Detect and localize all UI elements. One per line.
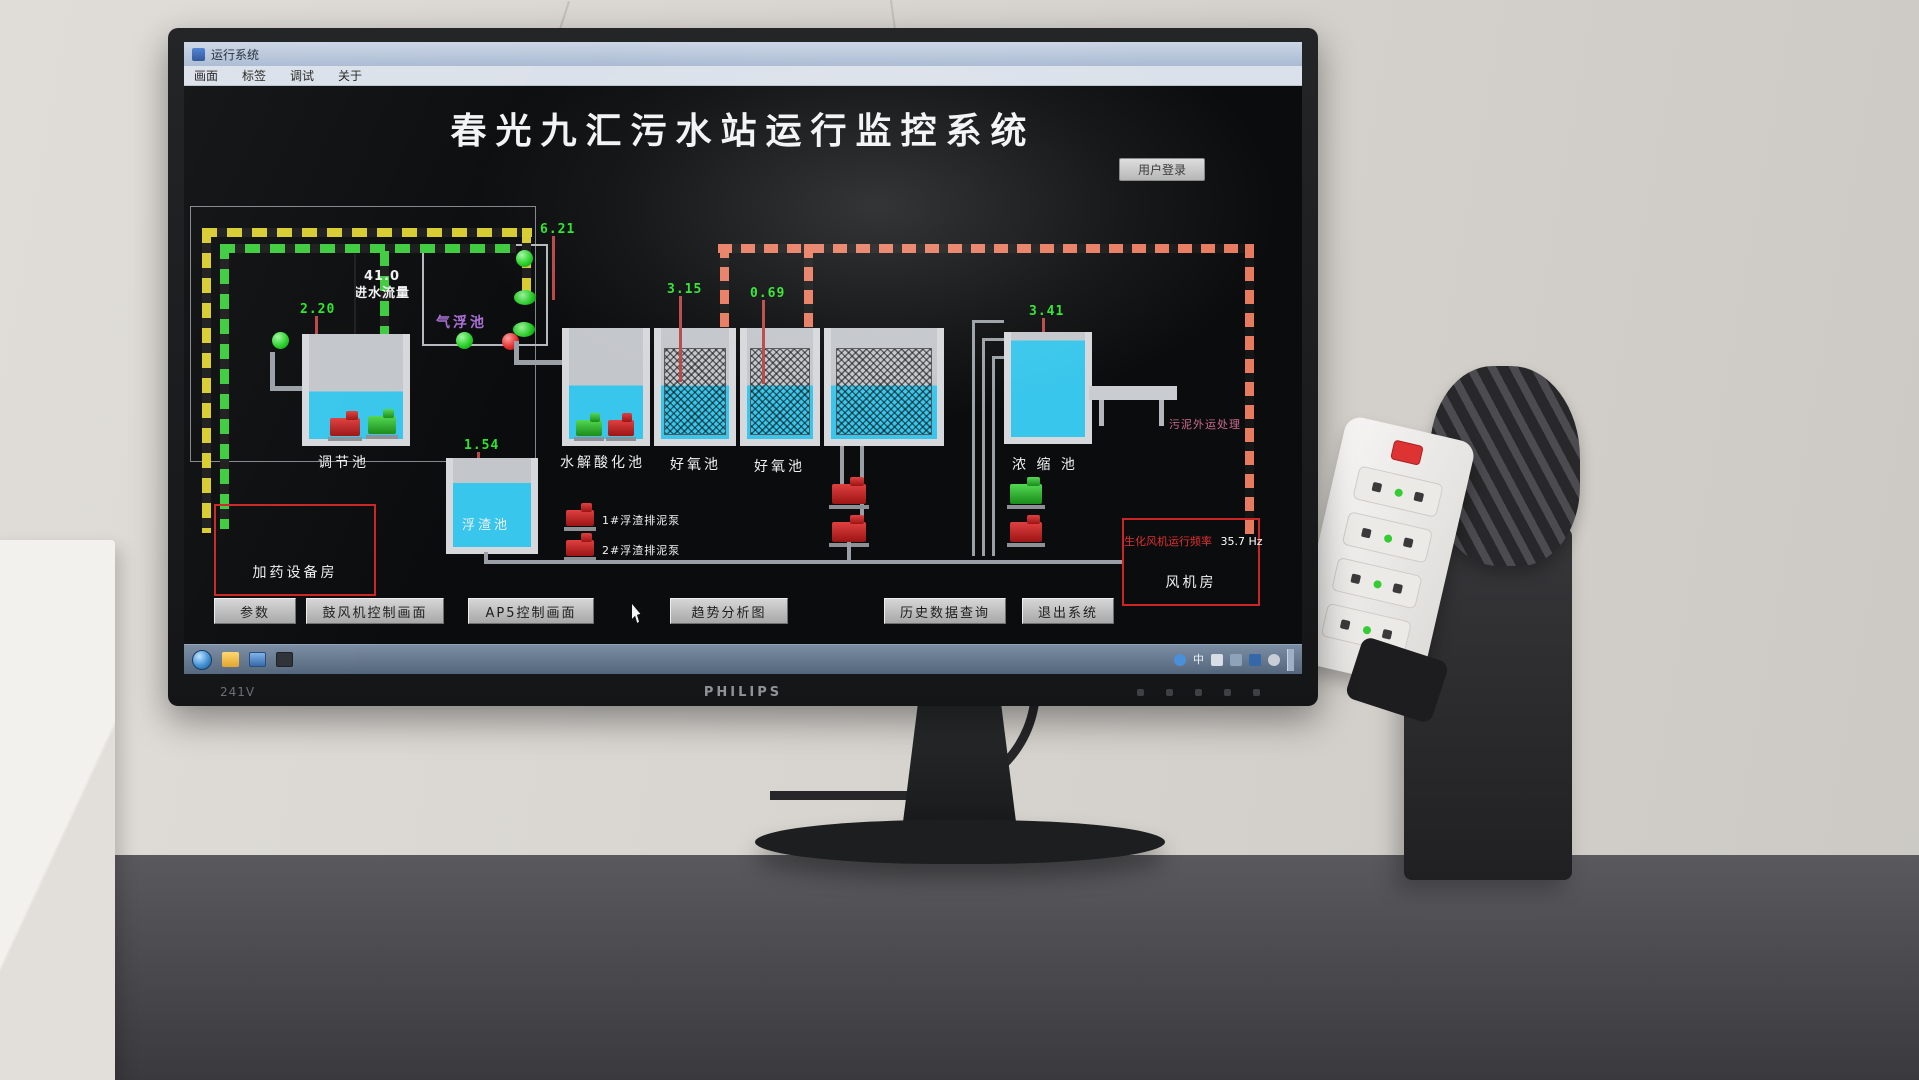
dosing-pipe-green — [220, 244, 229, 529]
blower-frequency-value: 35.7 Hz — [1221, 535, 1263, 548]
folder-icon[interactable] — [222, 652, 239, 667]
tank-label: 调节池 — [318, 452, 369, 472]
level-value: 6.21 — [540, 222, 575, 237]
monitor-button-icon[interactable] — [1224, 689, 1231, 696]
photo-scene: 运行系统 画面 标签 调试 关于 春光九汇污水站运行监控系统 用户登录 — [0, 0, 1919, 1080]
tray-language-icon[interactable]: 中 — [1193, 654, 1204, 665]
menu-item[interactable]: 调试 — [290, 67, 314, 84]
room-label: 风机房 — [1124, 572, 1258, 592]
tank-label: 好氧池 — [670, 454, 721, 474]
inlet-pipe — [270, 352, 275, 390]
power-socket — [1352, 465, 1443, 517]
monitor-stand-base — [755, 820, 1165, 864]
submersible-pump-red[interactable] — [330, 418, 360, 436]
tray-network-icon[interactable] — [1174, 654, 1186, 666]
level-sensor — [552, 236, 555, 300]
fan-room-box: 生化风机运行频率 35.7 Hz 风机房 — [1122, 518, 1260, 606]
aerobic-tank-3 — [824, 328, 944, 446]
sludge-pipe — [484, 560, 1124, 564]
inflow-readout: 41.0 进水流量 — [340, 268, 424, 302]
tray-settings-icon[interactable] — [1268, 654, 1280, 666]
aerobic-tank-1 — [654, 328, 736, 446]
submersible-pump-green[interactable] — [368, 416, 396, 434]
monitor-control-buttons[interactable] — [1137, 689, 1260, 696]
app-window-icon[interactable] — [276, 652, 293, 667]
sludge-out-label: 污泥外运处理 — [1169, 416, 1241, 432]
computer-icon[interactable] — [249, 652, 266, 667]
do-value: 3.15 — [667, 282, 702, 297]
window-menubar: 画面 标签 调试 关于 — [184, 66, 1302, 86]
mouse-cursor — [632, 604, 645, 623]
scum-pump-2[interactable] — [566, 540, 594, 556]
tank-pump-red[interactable] — [608, 420, 634, 436]
power-socket — [1331, 557, 1422, 609]
dosing-pipe-yellow — [202, 228, 532, 237]
conveyor-leg — [1099, 400, 1104, 426]
dosing-pipe-green — [220, 244, 516, 253]
menu-item[interactable]: 标签 — [242, 67, 266, 84]
user-login-button[interactable]: 用户登录 — [1119, 158, 1205, 181]
inflow-value: 41.0 — [340, 268, 424, 285]
level-value: 3.41 — [1029, 304, 1064, 319]
tank-label: 好氧池 — [754, 456, 805, 476]
tank-label: 气浮池 — [436, 312, 487, 332]
tank-pump-green[interactable] — [576, 420, 602, 436]
tray-app-icon[interactable] — [1249, 654, 1261, 666]
power-socket — [1342, 511, 1433, 563]
monitor-stand-neck — [902, 702, 1017, 830]
pipe-outlet-indicator — [514, 290, 536, 305]
monitor-model-label: 241V — [220, 685, 255, 699]
do-sensor — [762, 300, 765, 384]
nav-button-params[interactable]: 参数 — [214, 598, 296, 624]
tank-label: 浮渣池 — [462, 514, 510, 533]
room-label: 加药设备房 — [216, 562, 374, 582]
nav-button-trend-chart[interactable]: 趋势分析图 — [670, 598, 788, 624]
monitor-button-icon[interactable] — [1137, 689, 1144, 696]
sludge-pipe — [840, 446, 844, 486]
status-light-green — [456, 332, 473, 349]
hmi-canvas: 春光九汇污水站运行监控系统 用户登录 — [184, 86, 1302, 644]
aerobic-tank-2 — [740, 328, 820, 446]
wall-crack — [890, 0, 896, 30]
sludge-pipe — [484, 552, 488, 564]
power-strip-switch — [1390, 439, 1424, 465]
inlet-pipe — [270, 386, 306, 391]
tray-input-icon[interactable] — [1211, 654, 1223, 666]
thickener-tank — [1004, 332, 1092, 444]
thickener-pump-red[interactable] — [1010, 522, 1042, 542]
level-value: 2.20 — [300, 302, 335, 317]
scum-pump-1[interactable] — [566, 510, 594, 526]
status-light-green — [516, 250, 533, 267]
nav-button-exit-system[interactable]: 退出系统 — [1022, 598, 1114, 624]
white-carton — [0, 540, 115, 1080]
inflow-label: 进水流量 — [340, 285, 424, 302]
pump-label: 1#浮渣排泥泵 — [602, 512, 680, 528]
level-value: 1.54 — [464, 438, 499, 453]
blower-frequency-label: 生化风机运行频率 — [1124, 535, 1212, 548]
do-value: 0.69 — [750, 286, 785, 301]
do-sensor — [679, 296, 682, 382]
window-titlebar: 运行系统 — [184, 42, 1302, 66]
monitor-brand-logo: PHILIPS — [704, 685, 782, 700]
menu-item[interactable]: 画面 — [194, 67, 218, 84]
window-title: 运行系统 — [211, 46, 259, 63]
conveyor-leg — [1159, 400, 1164, 426]
return-pipe — [992, 356, 1004, 556]
desk-surface — [0, 855, 1919, 1080]
monitor-button-icon[interactable] — [1195, 689, 1202, 696]
air-pipe-red — [1245, 244, 1254, 534]
start-button-icon[interactable] — [192, 650, 212, 670]
app-icon — [192, 48, 205, 61]
monitor: 运行系统 画面 标签 调试 关于 春光九汇污水站运行监控系统 用户登录 — [168, 28, 1318, 706]
sludge-conveyor — [1089, 386, 1177, 400]
page-title: 春光九汇污水站运行监控系统 — [450, 102, 1035, 154]
sludge-pipe — [847, 542, 851, 562]
dosing-pipe-yellow — [202, 228, 211, 533]
dosing-room-box: 加药设备房 — [214, 504, 376, 596]
blower-frequency-readout: 生化风机运行频率 35.7 Hz — [1124, 533, 1258, 549]
status-light-green — [272, 332, 289, 349]
tray-volume-icon[interactable] — [1230, 654, 1242, 666]
monitor-button-icon[interactable] — [1166, 689, 1173, 696]
pump-label: 2#浮渣排泥泵 — [602, 542, 680, 558]
tank-label: 水解酸化池 — [560, 452, 645, 472]
system-tray: 中 — [1174, 649, 1294, 671]
air-pipe-red — [718, 244, 1254, 253]
menu-item[interactable]: 关于 — [338, 67, 362, 84]
taskbar: 中 — [184, 644, 1302, 674]
tank-label: 浓 缩 池 — [1012, 454, 1078, 474]
thickener-pump-green[interactable] — [1010, 484, 1042, 504]
nav-button-ap5-screen[interactable]: AP5控制画面 — [468, 598, 594, 624]
scum-tank — [446, 458, 538, 554]
monitor-power-icon[interactable] — [1253, 689, 1260, 696]
nav-button-history-query[interactable]: 历史数据查询 — [884, 598, 1006, 624]
show-desktop-button[interactable] — [1287, 649, 1294, 671]
sludge-pump-1[interactable] — [832, 484, 866, 504]
screen: 运行系统 画面 标签 调试 关于 春光九汇污水站运行监控系统 用户登录 — [184, 42, 1302, 674]
nav-button-blower-screen[interactable]: 鼓风机控制画面 — [306, 598, 444, 624]
sludge-pump-2[interactable] — [832, 522, 866, 542]
